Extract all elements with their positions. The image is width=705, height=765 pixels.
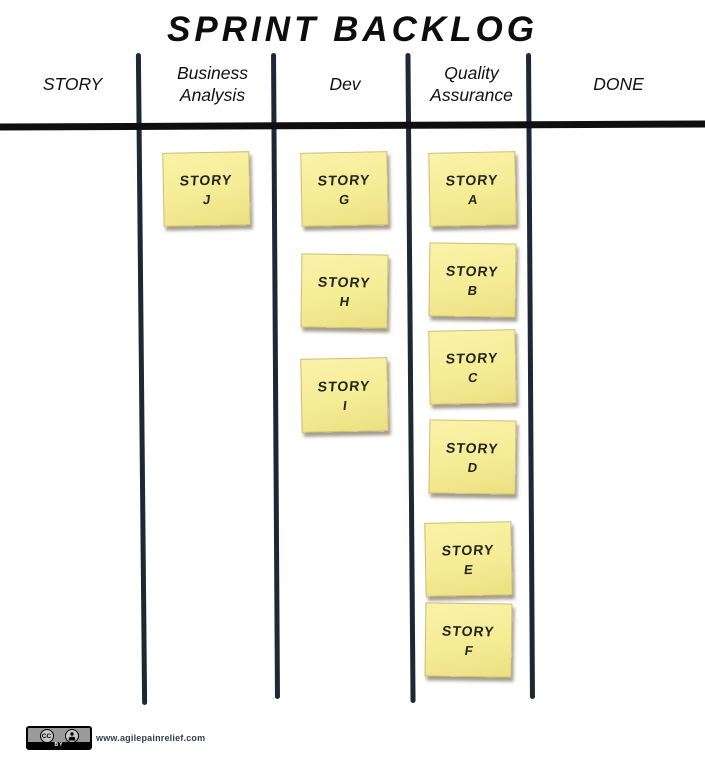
note-letter: I xyxy=(342,397,347,412)
note-letter: J xyxy=(202,191,211,206)
cc-by-label: BY xyxy=(28,742,90,748)
sticky-note-a[interactable]: STORYA xyxy=(428,151,516,227)
note-title: STORY xyxy=(317,377,371,394)
column-header-done: DONE xyxy=(532,60,705,110)
note-letter: E xyxy=(463,561,473,576)
sticky-note-h[interactable]: STORYH xyxy=(300,253,388,328)
sticky-note-f[interactable]: STORYF xyxy=(424,602,512,677)
note-title: STORY xyxy=(317,171,371,188)
cc-license-badge[interactable]: CC BY xyxy=(26,726,92,750)
note-title: STORY xyxy=(445,262,499,279)
note-title: STORY xyxy=(179,171,233,188)
note-letter: H xyxy=(338,293,350,308)
sticky-note-i[interactable]: STORYI xyxy=(300,357,388,433)
column-header-ba: Business Analysis xyxy=(147,60,278,110)
note-letter: D xyxy=(466,459,478,474)
note-letter: B xyxy=(466,282,478,297)
note-letter: C xyxy=(467,369,478,384)
note-letter: G xyxy=(339,191,351,206)
note-title: STORY xyxy=(445,349,499,366)
column-notes-ba: STORYJ xyxy=(147,135,278,226)
sticky-note-e[interactable]: STORYE xyxy=(424,521,512,597)
column-divider-1 xyxy=(136,53,147,705)
column-header-row: STORYBusiness AnalysisDevQuality Assuran… xyxy=(0,0,705,130)
sticky-note-j[interactable]: STORYJ xyxy=(162,151,250,227)
column-header-qa: Quality Assurance xyxy=(412,60,531,110)
note-letter: F xyxy=(463,642,473,657)
attribution-person-icon xyxy=(65,729,79,743)
sticky-note-b[interactable]: STORYB xyxy=(428,242,516,317)
column-notes-qa: STORYASTORYBSTORYCSTORYDSTORYESTORYF xyxy=(412,135,531,677)
note-title: STORY xyxy=(441,622,495,639)
column-notes-dev: STORYGSTORYHSTORYI xyxy=(280,135,410,432)
sticky-note-g[interactable]: STORYG xyxy=(300,151,388,227)
column-header-story: STORY xyxy=(0,60,145,110)
sticky-note-c[interactable]: STORYC xyxy=(428,329,516,405)
note-letter: A xyxy=(467,191,478,206)
sprint-backlog-board: SPRINT BACKLOG STORYBusiness AnalysisDev… xyxy=(0,0,705,765)
note-title: STORY xyxy=(317,273,371,290)
note-title: STORY xyxy=(445,171,499,188)
note-title: STORY xyxy=(441,541,495,558)
sticky-note-d[interactable]: STORYD xyxy=(428,419,516,494)
column-header-dev: Dev xyxy=(280,60,410,110)
cc-icon: CC xyxy=(40,729,54,743)
footer: CC BY www.agilepainrelief.com xyxy=(26,726,205,750)
website-url: www.agilepainrelief.com xyxy=(96,733,205,743)
note-title: STORY xyxy=(445,439,499,456)
